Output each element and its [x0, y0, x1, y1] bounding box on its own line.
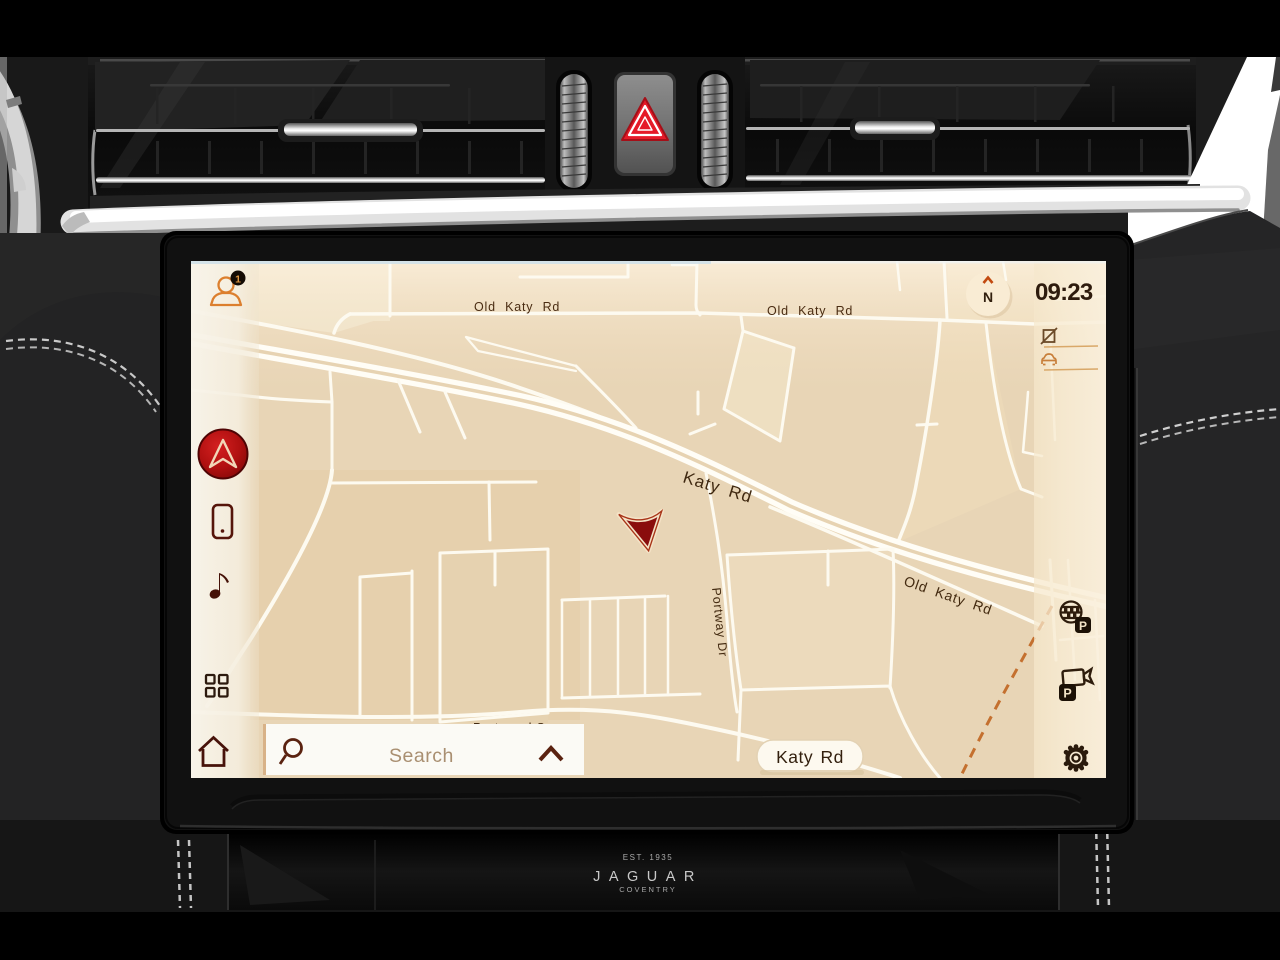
svg-text:N: N — [983, 289, 993, 305]
svg-text:Search: Search — [389, 745, 454, 767]
svg-text:Old Katy Rd: Old Katy Rd — [767, 304, 853, 318]
svg-text:COVENTRY: COVENTRY — [619, 885, 677, 894]
svg-text:1: 1 — [235, 274, 241, 286]
svg-text:P: P — [1079, 619, 1087, 633]
svg-text:P: P — [1063, 687, 1071, 701]
svg-text:Old Katy Rd: Old Katy Rd — [474, 300, 560, 314]
svg-text:EST. 1935: EST. 1935 — [623, 853, 673, 862]
svg-text:09:23: 09:23 — [1035, 279, 1093, 306]
svg-text:JAGUAR: JAGUAR — [593, 869, 703, 885]
svg-text:Katy Rd: Katy Rd — [776, 747, 844, 767]
